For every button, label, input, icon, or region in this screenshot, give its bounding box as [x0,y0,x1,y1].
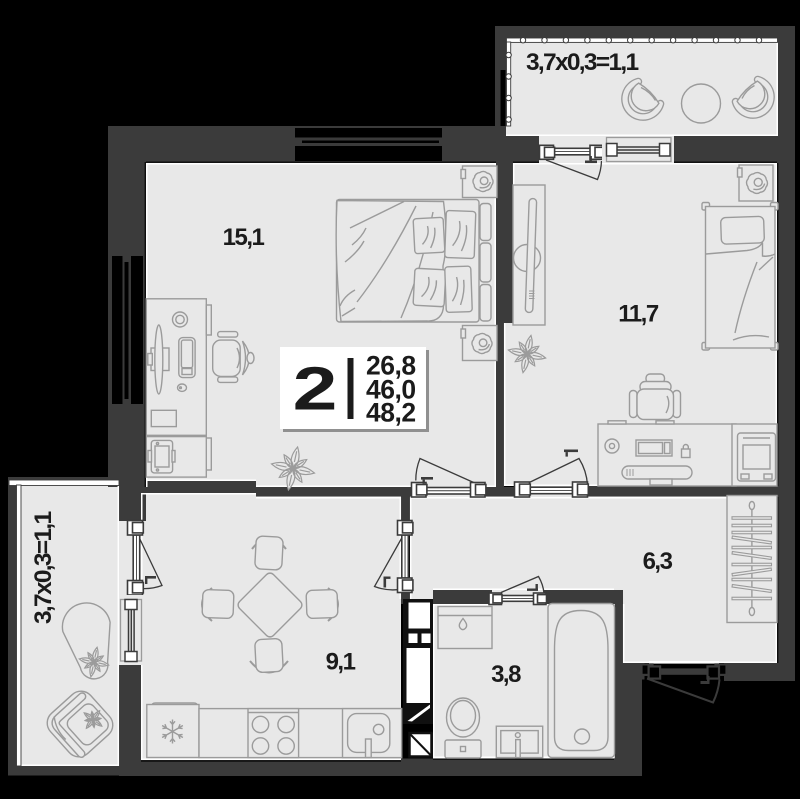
svg-text:3,7x0,3=1,1: 3,7x0,3=1,1 [526,49,638,76]
svg-text:3,7x0,3=1,1: 3,7x0,3=1,1 [30,512,57,624]
svg-text:15,1: 15,1 [223,224,265,251]
svg-text:2: 2 [293,355,338,423]
svg-text:6,3: 6,3 [643,548,673,575]
svg-text:9,1: 9,1 [326,649,356,676]
svg-text:11,7: 11,7 [618,301,659,328]
svg-text:48,2: 48,2 [366,398,416,428]
svg-text:3,8: 3,8 [491,661,521,688]
